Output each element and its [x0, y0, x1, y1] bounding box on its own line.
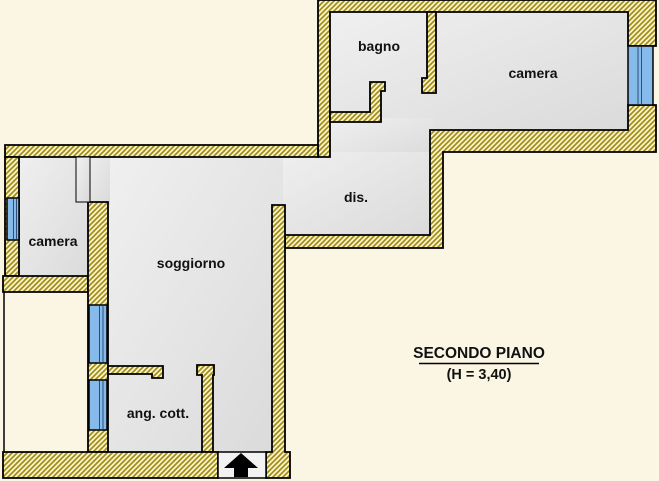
shaft-door-leaf	[76, 157, 90, 202]
plan-title: SECONDO PIANO	[413, 345, 545, 362]
floor-plan-canvas: bagno camera dis. camera soggiorno ang. …	[0, 0, 659, 481]
label-camera-top: camera	[508, 65, 557, 81]
label-ang-cott: ang. cott.	[127, 405, 189, 421]
plan-height-note: (H = 3,40)	[447, 367, 512, 383]
window-camera-top	[628, 46, 653, 105]
wall-left-wing-top	[5, 145, 318, 157]
window-soggiorno-lower	[89, 380, 107, 430]
label-camera-left: camera	[28, 233, 77, 249]
window-camera-left	[7, 198, 19, 240]
label-bagno: bagno	[358, 38, 400, 54]
label-dis: dis.	[344, 189, 368, 205]
floor-plan: bagno camera dis. camera soggiorno ang. …	[0, 0, 659, 481]
wall-camera-left-bottom	[3, 276, 88, 292]
label-soggiorno: soggiorno	[157, 255, 225, 271]
wall-bottom	[3, 452, 218, 478]
window-soggiorno-upper	[89, 305, 107, 363]
